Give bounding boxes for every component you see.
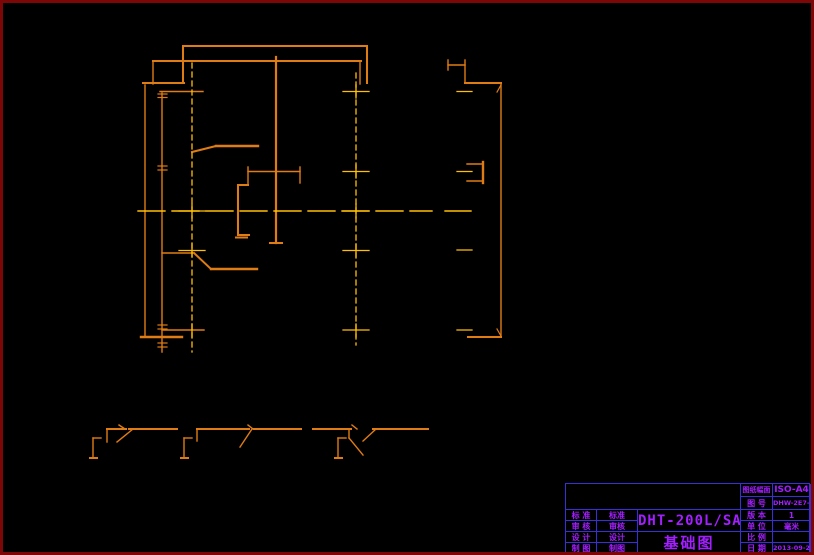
model-number: DHT-200L/SA (638, 510, 741, 532)
drawing-title: 基础图 (638, 532, 741, 554)
cad-drawing (0, 0, 814, 555)
tb-right-label: 日 期 (741, 543, 773, 554)
line-segment (194, 253, 211, 269)
tb-right-value: DHW-2E7-01 (773, 497, 811, 510)
line-segment (192, 146, 216, 152)
tb-right-label: 单 位 (741, 521, 773, 532)
line-segment (352, 425, 357, 429)
tb-right-label: 比 例 (741, 532, 773, 543)
tb-left-value: 审核 (597, 521, 638, 532)
line-segment (240, 429, 252, 447)
line-segment (117, 429, 133, 442)
tb-right-label: 图 号 (741, 497, 773, 510)
title-block: 标 准 标准 审 核 审核 设 计 设计 制 图 制图 DHT-200L/SA … (565, 483, 810, 553)
tb-right-value: 毫米 (773, 521, 811, 532)
tb-right-label: 图纸幅面 (741, 484, 773, 497)
tb-right-value (773, 532, 811, 543)
line-segment (363, 429, 376, 441)
tb-right-value: 1 (773, 510, 811, 521)
title-block-empty-cell (566, 484, 741, 510)
tb-left-value: 设计 (597, 532, 638, 543)
tb-left-label: 制 图 (566, 543, 597, 554)
tb-left-label: 设 计 (566, 532, 597, 543)
tb-left-label: 审 核 (566, 521, 597, 532)
tb-left-value: 标准 (597, 510, 638, 521)
tb-right-label: 版 本 (741, 510, 773, 521)
tb-left-label: 标 准 (566, 510, 597, 521)
cad-sheet: 标 准 标准 审 核 审核 设 计 设计 制 图 制图 DHT-200L/SA … (0, 0, 814, 555)
tb-right-value: ISO-A4 (773, 484, 811, 497)
tb-left-value: 制图 (597, 543, 638, 554)
tb-right-value: 2013-09-21 (773, 543, 811, 554)
line-segment (349, 438, 363, 455)
